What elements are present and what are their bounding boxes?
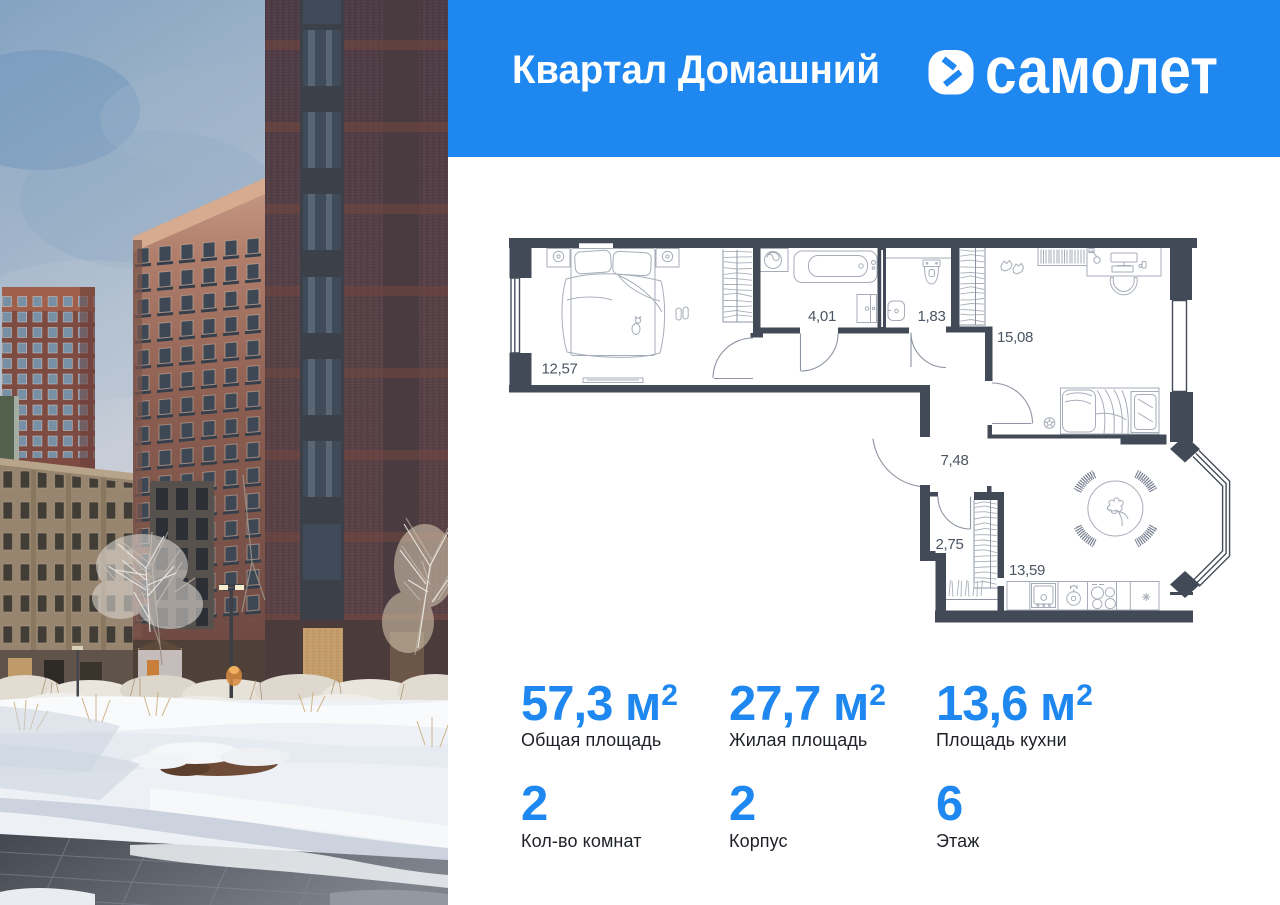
svg-text:Квартал Домашний: Квартал Домашний xyxy=(512,48,880,92)
svg-text:7,48: 7,48 xyxy=(941,452,969,469)
svg-text:4,01: 4,01 xyxy=(808,308,836,325)
svg-text:1,83: 1,83 xyxy=(918,308,946,325)
svg-text:12,57: 12,57 xyxy=(542,361,578,378)
svg-text:15,08: 15,08 xyxy=(997,329,1033,346)
svg-text:2,75: 2,75 xyxy=(936,536,964,553)
svg-text:самолет: самолет xyxy=(985,33,1218,107)
svg-text:13,59: 13,59 xyxy=(1009,562,1045,579)
